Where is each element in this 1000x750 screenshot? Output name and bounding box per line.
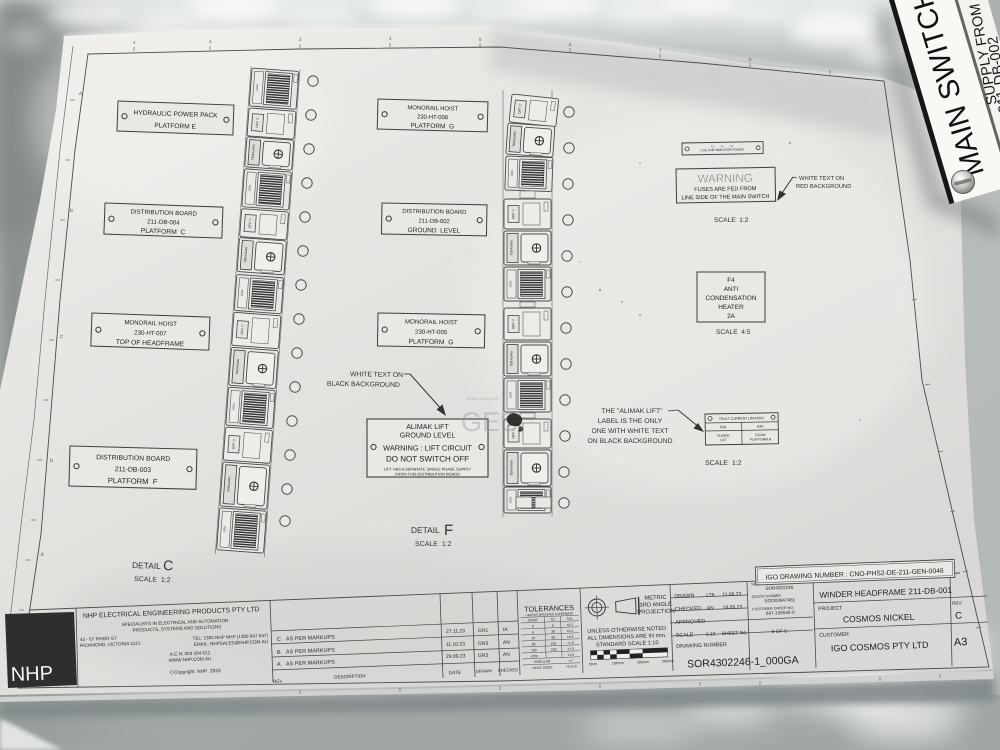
svg-text:GN3: GN3 xyxy=(478,641,489,647)
svg-text:C: C xyxy=(955,610,962,621)
svg-text:AN: AN xyxy=(503,640,511,646)
svg-text:1:10: 1:10 xyxy=(706,631,716,637)
svg-text:230-HT-005: 230-HT-005 xyxy=(415,329,448,337)
svg-text:±0.2: ±0.2 xyxy=(566,623,573,627)
svg-text:SCALE 1:2: SCALE 1:2 xyxy=(134,576,171,584)
svg-text:211-DB-004: 211-DB-004 xyxy=(147,218,180,226)
svg-text:WARNING: WARNING xyxy=(698,173,753,186)
svg-text:A: A xyxy=(277,662,281,668)
svg-text:0mm: 0mm xyxy=(589,662,597,666)
svg-text:SCALE 1:2: SCALE 1:2 xyxy=(415,541,452,548)
svg-text:DRAWN: DRAWN xyxy=(674,593,694,600)
svg-text:TOL: TOL xyxy=(566,617,573,621)
svg-text:TERASAKI: TERASAKI xyxy=(510,240,514,256)
svg-text:GROUND LEVEL: GROUND LEVEL xyxy=(400,432,456,440)
svg-text:TERASAKI: TERASAKI xyxy=(510,460,514,476)
svg-text:BLACK BACKGROUND: BLACK BACKGROUND xyxy=(327,381,400,389)
svg-text:global equipment: global equipment xyxy=(466,396,499,401)
svg-text:DISTRIBUTION BOARD: DISTRIBUTION BOARD xyxy=(402,208,466,216)
svg-text:100A: 100A xyxy=(510,170,514,177)
svg-text:PROJECT: PROJECT xyxy=(818,605,843,612)
svg-text:100: 100 xyxy=(531,648,537,652)
svg-text:SCALE 1:2: SCALE 1:2 xyxy=(714,217,749,224)
svg-text:100A: 100A xyxy=(509,391,513,398)
svg-text:DRAWN: DRAWN xyxy=(476,668,492,674)
svg-text:100A: 100A xyxy=(222,526,227,533)
svg-text:100: 100 xyxy=(551,641,557,645)
svg-text:HOLE SIZES: HOLE SIZES xyxy=(532,665,553,670)
svg-text:SCALE: SCALE xyxy=(676,632,694,639)
svg-text:FUSES ARE FED FROM: FUSES ARE FED FROM xyxy=(694,186,757,193)
svg-text:CONDENSATION: CONDENSATION xyxy=(705,295,756,302)
svg-text:100mm: 100mm xyxy=(612,661,624,665)
svg-text:100A: 100A xyxy=(509,496,513,503)
svg-text:ON BLACK BACKGROUND: ON BLACK BACKGROUND xyxy=(588,438,673,445)
svg-text:±1°: ±1° xyxy=(569,658,575,662)
svg-text:250: 250 xyxy=(551,647,557,651)
svg-text:11.10.23: 11.10.23 xyxy=(446,641,466,648)
svg-text:GROUND LEVEL: GROUND LEVEL xyxy=(408,227,461,235)
svg-text:PROJECTION: PROJECTION xyxy=(637,608,675,616)
svg-text:18.09.23: 18.09.23 xyxy=(723,604,743,611)
svg-text:ANTI: ANTI xyxy=(724,286,739,293)
svg-text:F4: F4 xyxy=(727,277,735,284)
svg-text:OFF ▽: OFF ▽ xyxy=(512,208,516,219)
svg-text:±1.5: ±1.5 xyxy=(567,647,574,651)
svg-text:6 OF 6: 6 OF 6 xyxy=(772,629,788,636)
svg-text:6: 6 xyxy=(552,624,554,628)
svg-text:WHITE TEXT ON: WHITE TEXT ON xyxy=(350,371,403,379)
svg-text:GN1: GN1 xyxy=(478,628,489,634)
svg-text:SCALE 4:5: SCALE 4:5 xyxy=(716,329,751,336)
svg-text:211-DB-003: 211-DB-003 xyxy=(115,466,152,474)
svg-text:0: 0 xyxy=(532,624,534,628)
svg-text:LIFT: LIFT xyxy=(720,438,727,442)
svg-text:6: 6 xyxy=(532,630,534,634)
svg-text:PLATFORM E: PLATFORM E xyxy=(154,122,196,130)
svg-text:11.09.23: 11.09.23 xyxy=(722,591,742,598)
svg-text:E: E xyxy=(41,552,44,557)
svg-text:FAULT CURRENT LIMITERS: FAULT CURRENT LIMITERS xyxy=(719,416,764,421)
svg-text:+250: +250 xyxy=(530,654,538,658)
svg-text:27.11.23: 27.11.23 xyxy=(446,628,466,635)
svg-text:THE "ALIMAK LIFT": THE "ALIMAK LIFT" xyxy=(601,408,663,415)
svg-text:ANGULAR: ANGULAR xyxy=(534,659,551,664)
svg-text:±0.5: ±0.5 xyxy=(567,635,574,639)
svg-text:REV.: REV. xyxy=(952,600,963,605)
svg-text:AN: AN xyxy=(503,652,511,658)
svg-text:ONE WITH WHITE TEXT: ONE WITH WHITE TEXT xyxy=(592,428,669,435)
svg-text:±2.0: ±2.0 xyxy=(568,653,575,657)
svg-text:211-DB-002: 211-DB-002 xyxy=(418,218,449,226)
svg-text:300mm: 300mm xyxy=(662,659,674,663)
svg-text:A: A xyxy=(79,91,82,96)
svg-text:F: F xyxy=(444,522,453,539)
svg-text:DETAIL: DETAIL xyxy=(132,560,161,571)
svg-text:B: B xyxy=(277,650,281,656)
svg-text:SCALE 1:2: SCALE 1:2 xyxy=(705,460,742,467)
svg-text:FROM THIS DISTRIBUTION BOARD: FROM THIS DISTRIBUTION BOARD xyxy=(395,472,460,477)
svg-text:WHITE TEXT ON: WHITE TEXT ON xyxy=(799,175,844,182)
svg-text:OFF ▽: OFF ▽ xyxy=(512,318,516,329)
svg-text:±1.0: ±1.0 xyxy=(567,641,574,645)
svg-text:OFF ▽: OFF ▽ xyxy=(240,324,245,335)
svg-text:AN: AN xyxy=(707,605,715,611)
svg-text:SHEET No.: SHEET No. xyxy=(722,630,748,637)
svg-text:63A: 63A xyxy=(720,425,727,429)
svg-text:RED BACKGROUND: RED BACKGROUND xyxy=(796,183,851,190)
svg-text:DETAIL: DETAIL xyxy=(411,525,440,535)
svg-text:PLATFORM G: PLATFORM G xyxy=(409,339,454,347)
svg-text:HEATER: HEATER xyxy=(718,304,744,311)
svg-text:A3: A3 xyxy=(954,636,968,649)
svg-text:100A: 100A xyxy=(255,84,260,91)
svg-text:REV: REV xyxy=(273,679,284,684)
svg-text:200mm: 200mm xyxy=(637,660,649,664)
svg-text:2A: 2A xyxy=(727,313,736,320)
svg-text:OFF ▽: OFF ▽ xyxy=(248,218,253,229)
svg-text:100A: 100A xyxy=(247,185,252,192)
svg-text:230-HT-007: 230-HT-007 xyxy=(134,329,167,337)
svg-text:CUSTOMER: CUSTOMER xyxy=(819,632,849,639)
svg-text:MONORAIL HOIST: MONORAIL HOIST xyxy=(407,104,458,112)
svg-text:OFF ▽: OFF ▽ xyxy=(255,117,260,128)
svg-text:90: 90 xyxy=(551,635,555,639)
svg-text:LABEL IS THE ONLY: LABEL IS THE ONLY xyxy=(598,418,663,425)
svg-text:100A: 100A xyxy=(231,403,236,410)
svg-text:B: B xyxy=(70,208,73,213)
svg-text:OVER: OVER xyxy=(528,618,538,622)
svg-text:PLATFORM F: PLATFORM F xyxy=(108,476,158,486)
svg-text:GN3: GN3 xyxy=(478,653,489,659)
svg-text:TO: TO xyxy=(550,617,555,621)
svg-text:3RD ANGLE: 3RD ANGLE xyxy=(639,601,672,609)
svg-text:APPROVED: APPROVED xyxy=(675,619,705,626)
svg-text:CHECKED: CHECKED xyxy=(675,606,702,613)
svg-text:NHP: NHP xyxy=(10,663,53,686)
svg-text:±0.4: ±0.4 xyxy=(567,629,574,633)
svg-text:63A: 63A xyxy=(757,424,764,428)
svg-text:230-HT-006: 230-HT-006 xyxy=(417,114,449,122)
svg-text:C: C xyxy=(277,637,281,643)
svg-text:LT6: LT6 xyxy=(706,592,715,598)
svg-text:ALIMAK: ALIMAK xyxy=(717,434,730,438)
svg-text:30: 30 xyxy=(551,629,555,633)
svg-text:MONORAIL HOIST: MONORAIL HOIST xyxy=(405,318,458,326)
svg-text:29.09.23: 29.09.23 xyxy=(446,653,466,660)
svg-text:METRIC: METRIC xyxy=(644,594,666,602)
svg-text:PLATFORM G: PLATFORM G xyxy=(410,122,454,130)
svg-text:OFF ▽: OFF ▽ xyxy=(232,439,237,450)
svg-text:DATE: DATE xyxy=(449,670,461,675)
svg-text:ALIMAK LIFT: ALIMAK LIFT xyxy=(406,423,449,431)
svg-text:PLATFORM B: PLATFORM B xyxy=(750,437,772,441)
svg-text:DO NOT SWITCH OFF: DO NOT SWITCH OFF xyxy=(386,455,469,464)
svg-text:100A: 100A xyxy=(240,289,245,296)
svg-text:100A: 100A xyxy=(509,280,513,287)
svg-text:C: C xyxy=(163,557,174,573)
svg-text:WARNING : LIFT CIRCUIT: WARNING : LIFT CIRCUIT xyxy=(383,444,472,453)
svg-text:CHECKED: CHECKED xyxy=(498,667,519,673)
svg-text:30: 30 xyxy=(531,636,535,640)
svg-text:90: 90 xyxy=(532,642,536,646)
svg-text:+0.2/-0: +0.2/-0 xyxy=(566,664,577,668)
svg-text:TERASAKI: TERASAKI xyxy=(510,351,514,367)
svg-text:LIVE LINE INDICATOR POWER: LIVE LINE INDICATOR POWER xyxy=(700,148,744,153)
